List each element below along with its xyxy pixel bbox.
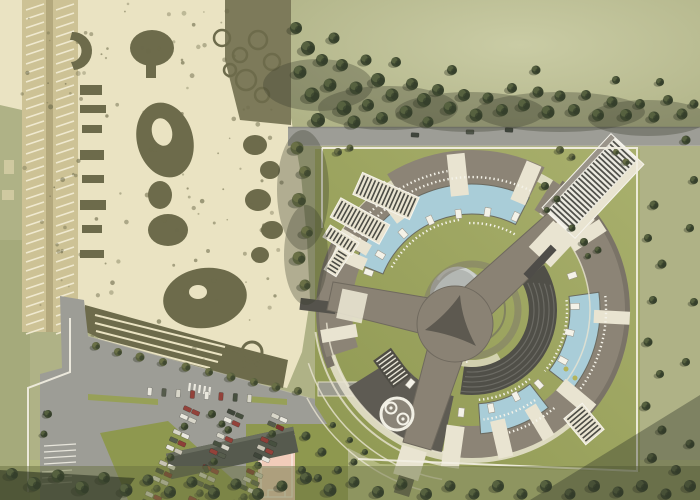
parked-car: [218, 392, 223, 400]
spiral-center: [389, 406, 392, 409]
pool-kiosk: [570, 303, 579, 309]
pool-kiosk: [458, 408, 465, 418]
parked-car: [233, 393, 238, 401]
spiral-pad: [381, 398, 413, 430]
parked-car: [190, 390, 195, 398]
parked-car: [247, 394, 252, 402]
photo-road-median: [46, 0, 53, 332]
spiral-center: [401, 417, 404, 420]
existing-park-photo: [0, 0, 310, 388]
field-structure: [4, 160, 14, 174]
parked-car: [176, 389, 181, 397]
parked-car: [411, 133, 419, 138]
palm-marker: [573, 376, 578, 381]
radial-walkway: [593, 310, 630, 325]
spiral-slides: [381, 398, 413, 430]
pool-kiosk: [455, 209, 462, 219]
field-structure: [2, 190, 14, 200]
parked-car: [204, 391, 209, 399]
parked-car: [161, 388, 166, 396]
palm-marker: [564, 367, 569, 372]
site-plan-canvas: [0, 0, 700, 500]
parked-car: [147, 387, 152, 395]
pool-kiosk: [484, 207, 491, 217]
aerial-site-plan: [0, 0, 700, 500]
